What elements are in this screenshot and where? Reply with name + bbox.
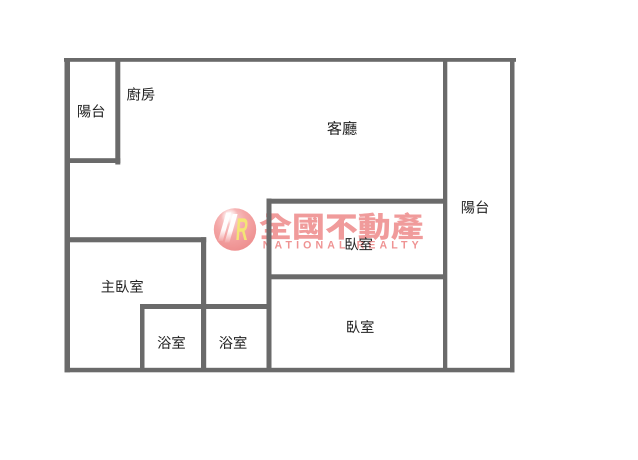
svg-text:NATIONAL REALTY: NATIONAL REALTY — [263, 239, 419, 251]
svg-text:R: R — [235, 212, 250, 247]
